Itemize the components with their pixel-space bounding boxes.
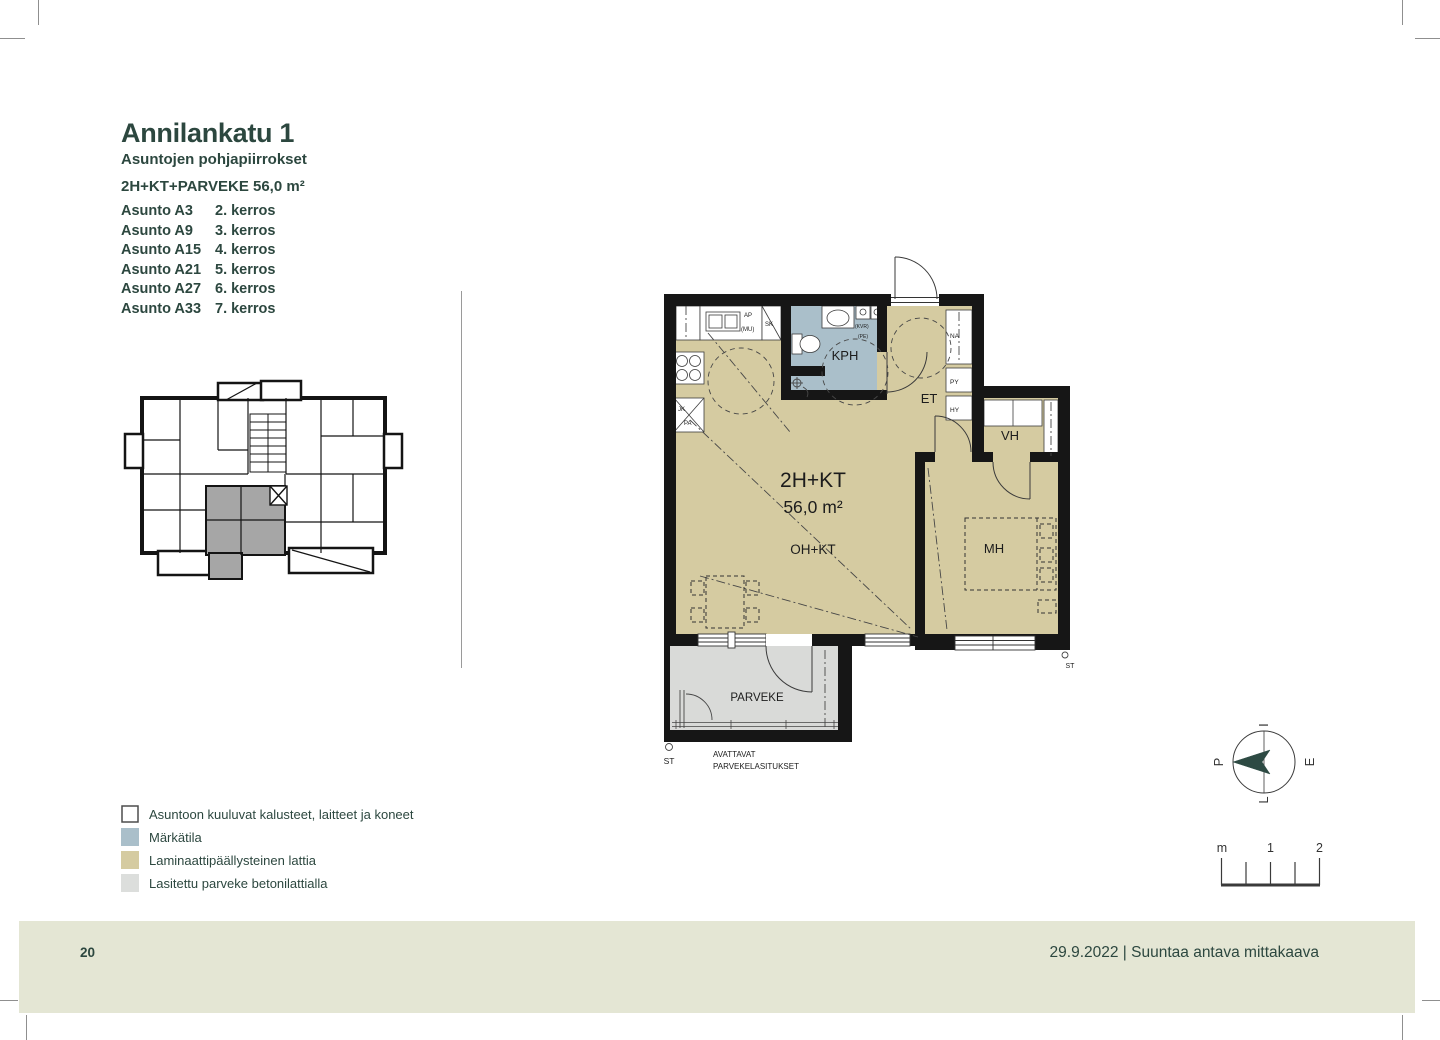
page-title: Annilankatu 1 [121, 118, 294, 149]
scale-mid-label: 1 [1267, 841, 1274, 855]
page-subtitle: Asuntojen pohjapiirrokset [121, 151, 307, 168]
entrance-threshold [891, 294, 939, 306]
page-number: 20 [80, 945, 95, 960]
legend-label: Lasitettu parveke betonilattialla [149, 876, 328, 891]
room-label-kph: KPH [832, 348, 859, 363]
scale-end-label: 2 [1316, 841, 1323, 855]
apartment-name: Asunto A3 [121, 202, 215, 222]
apartment-type-label: 2H+KT+PARVEKE 56,0 m² [121, 178, 305, 195]
compass-label-top: I [1256, 723, 1271, 727]
apartment-name: Asunto A33 [121, 300, 215, 320]
balcony-note-line2: PARVEKELASITUKSET [713, 762, 799, 771]
apartment-list-item: Asunto A215. kerros [121, 261, 275, 281]
balcony-door-gap [766, 634, 812, 646]
svg-text:NA: NA [950, 333, 960, 340]
footer-band: 20 29.9.2022 | Suuntaa antava mittakaava [19, 921, 1415, 1013]
legend-item: Laminaattipäällysteinen lattia [121, 851, 414, 869]
legend-swatch-laminate [121, 851, 139, 869]
toilet-icon [800, 336, 820, 353]
apartment-list-item: Asunto A276. kerros [121, 280, 275, 300]
crop-mark-tr-h [1415, 38, 1440, 39]
floorplan-fills [670, 306, 1058, 730]
svg-text:(KVR): (KVR) [855, 324, 869, 330]
apartment-list: Asunto A32. kerros Asunto A93. kerros As… [121, 202, 275, 319]
crop-mark-br-v [1402, 1015, 1403, 1040]
scale-bar: m 1 2 [1214, 838, 1326, 892]
apartment-name: Asunto A27 [121, 280, 215, 300]
apartment-list-item: Asunto A154. kerros [121, 241, 275, 261]
crop-mark-bl-h [0, 1000, 18, 1001]
window [865, 634, 910, 646]
legend-swatch-wet-room [121, 828, 139, 846]
svg-text:(PE): (PE) [858, 334, 868, 340]
st-marker-circle [1062, 652, 1068, 658]
svg-text:HY: HY [950, 407, 960, 414]
apartment-area: 56,0 m² [783, 497, 842, 517]
svg-text:PA: PA [684, 421, 692, 427]
apartment-list-item: Asunto A32. kerros [121, 202, 275, 222]
apartment-name: Asunto A9 [121, 222, 215, 242]
apartment-floor: 6. kerros [215, 280, 275, 300]
compass-label-right: E [1302, 757, 1317, 766]
crop-mark-br-h [1422, 1000, 1440, 1001]
svg-text:JK: JK [678, 407, 685, 413]
crop-mark-tl-h [0, 38, 25, 39]
legend-item: Märkätila [121, 828, 414, 846]
column-divider [461, 291, 462, 668]
key-plan-elevator [270, 486, 287, 505]
apartment-floor: 7. kerros [215, 300, 275, 320]
apartment-list-item: Asunto A337. kerros [121, 300, 275, 320]
window [955, 636, 1035, 650]
room-label-et: ET [921, 391, 938, 406]
washer-box [856, 306, 870, 319]
svg-text:AP: AP [744, 313, 752, 319]
room-label-vh: VH [1001, 428, 1019, 443]
key-plan [122, 370, 417, 582]
legend-swatch-fixtures [121, 805, 139, 823]
legend-item: Lasitettu parveke betonilattialla [121, 874, 414, 892]
bathroom-sink-icon [827, 310, 849, 326]
crop-mark-tl-v [38, 0, 39, 25]
st-label-right: ST [1066, 663, 1076, 670]
crop-mark-tr-v [1402, 0, 1403, 25]
balcony-note-line1: AVATTAVAT [713, 750, 756, 759]
footer-note: 29.9.2022 | Suuntaa antava mittakaava [1050, 944, 1319, 962]
svg-text:SK: SK [765, 322, 773, 328]
st-label-left: ST [664, 756, 675, 766]
scale-unit-label: m [1217, 841, 1227, 855]
room-label-parveke: PARVEKE [730, 692, 784, 704]
legend-label: Laminaattipäällysteinen lattia [149, 853, 316, 868]
floor-plan: KPH ET VH MH 2H+KT 56,0 m² OH+KT PARVEKE… [660, 248, 1085, 778]
legend-label: Asuntoon kuuluvat kalusteet, laitteet ja… [149, 807, 414, 822]
apartment-floor: 4. kerros [215, 241, 275, 261]
apartment-floor: 2. kerros [215, 202, 275, 222]
apartment-type: 2H+KT [780, 469, 846, 492]
room-label-mh: MH [984, 541, 1004, 556]
svg-text:(MU): (MU) [741, 327, 754, 333]
st-marker-circle [666, 744, 673, 751]
legend-item: Asuntoon kuuluvat kalusteet, laitteet ja… [121, 805, 414, 823]
entrance-door [895, 257, 937, 299]
compass-label-bottom: L [1256, 796, 1271, 803]
apartment-name: Asunto A21 [121, 261, 215, 281]
svg-text:PY: PY [950, 379, 959, 386]
compass-rose: P I E L [1208, 714, 1323, 829]
legend: Asuntoon kuuluvat kalusteet, laitteet ja… [121, 805, 414, 892]
apartment-floor: 5. kerros [215, 261, 275, 281]
legend-label: Märkätila [149, 830, 202, 845]
balcony-floor-area [670, 646, 838, 730]
crop-mark-bl-v [26, 1015, 27, 1040]
apartment-list-item: Asunto A93. kerros [121, 222, 275, 242]
apartment-floor: 3. kerros [215, 222, 275, 242]
apartment-name: Asunto A15 [121, 241, 215, 261]
room-label-ohkt: OH+KT [790, 542, 835, 557]
brochure-page: Annilankatu 1 Asuntojen pohjapiirrokset … [0, 0, 1440, 1040]
compass-label-north: P [1211, 758, 1226, 767]
kitchen-tall-cabinet [676, 306, 700, 340]
legend-swatch-balcony [121, 874, 139, 892]
